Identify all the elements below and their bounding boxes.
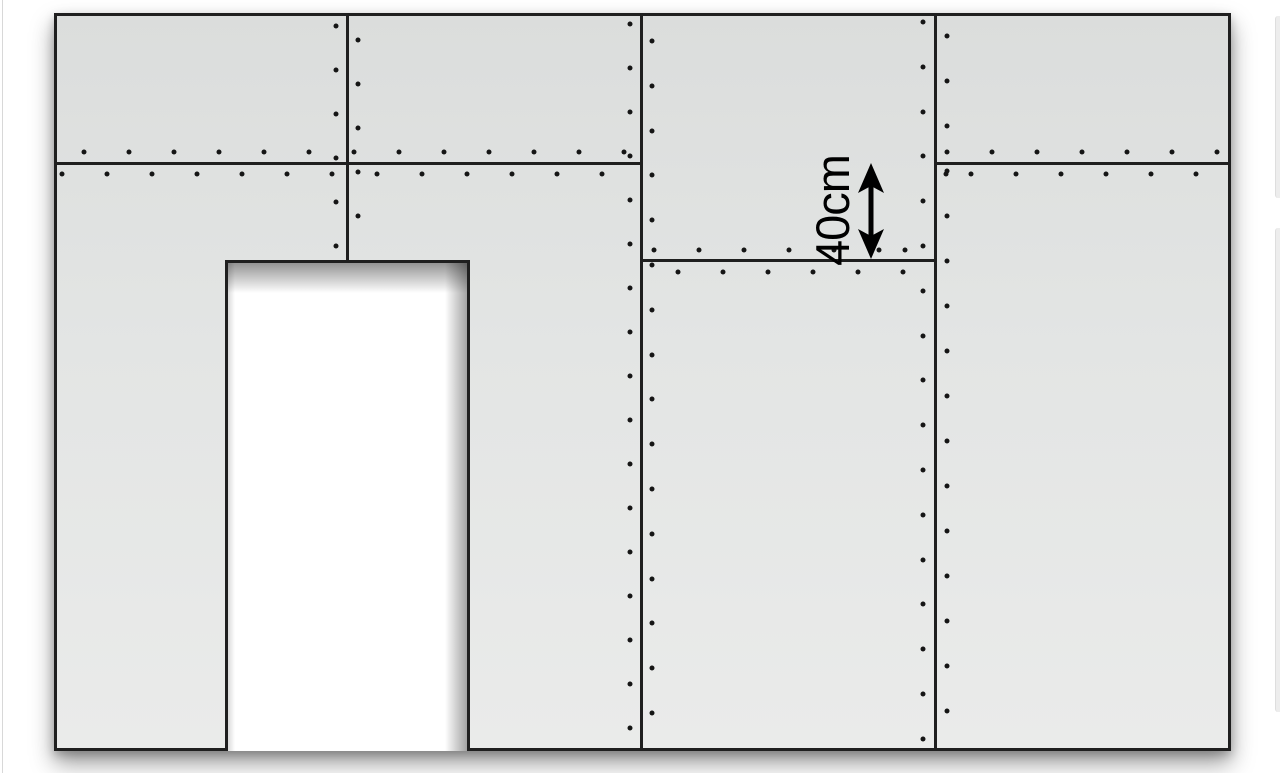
screw-dot <box>721 270 726 275</box>
screw-dot <box>628 550 633 555</box>
screw-dot <box>628 330 633 335</box>
screw-dot <box>903 248 908 253</box>
panel-seam-line <box>346 13 349 260</box>
page-left-edge-line <box>2 0 3 773</box>
screw-dot <box>921 736 926 741</box>
screw-dot <box>921 199 926 204</box>
screw-dot <box>945 664 950 669</box>
screw-dot <box>945 259 950 264</box>
diagram-canvas: 40cm <box>0 0 1280 773</box>
screw-dot <box>217 150 222 155</box>
screw-dot <box>628 242 633 247</box>
screw-dot <box>811 270 816 275</box>
screw-dot <box>742 248 747 253</box>
screw-dot <box>921 423 926 428</box>
screw-dot <box>334 156 339 161</box>
screw-dot <box>628 66 633 71</box>
screw-dot <box>1080 150 1085 155</box>
screw-dot <box>532 150 537 155</box>
screw-dot <box>1059 172 1064 177</box>
screw-dot <box>1014 172 1019 177</box>
screw-dot <box>442 150 447 155</box>
screw-dot <box>628 198 633 203</box>
screw-dot <box>334 68 339 73</box>
screw-dot <box>921 244 926 249</box>
door-inner-shadow-left <box>228 263 235 751</box>
screw-dot <box>945 439 950 444</box>
panel-seam-line <box>640 13 643 751</box>
door-inner-shadow-right <box>445 263 467 751</box>
screw-dot <box>650 397 655 402</box>
screw-dot <box>945 79 950 84</box>
screw-dot <box>356 126 361 131</box>
screw-dot <box>766 270 771 275</box>
screw-dot <box>397 150 402 155</box>
screw-dot <box>921 20 926 25</box>
screw-dot <box>650 218 655 223</box>
screw-dot <box>330 172 335 177</box>
screw-dot <box>628 726 633 731</box>
screw-dot <box>510 172 515 177</box>
screw-dot <box>628 418 633 423</box>
screw-dot <box>356 82 361 87</box>
screw-dot <box>628 374 633 379</box>
screw-dot <box>945 169 950 174</box>
screw-dot <box>334 112 339 117</box>
screw-dot <box>945 150 950 155</box>
screw-dot <box>465 172 470 177</box>
screw-dot <box>697 248 702 253</box>
screw-dot <box>1149 172 1154 177</box>
screw-dot <box>195 172 200 177</box>
screw-dot <box>127 150 132 155</box>
screw-dot <box>650 39 655 44</box>
screw-dot <box>650 352 655 357</box>
panel-seam-line <box>54 162 641 165</box>
screw-dot <box>622 150 627 155</box>
screw-dot <box>262 150 267 155</box>
screw-dot <box>856 270 861 275</box>
screw-dot <box>921 468 926 473</box>
screw-dot <box>334 24 339 29</box>
screw-dot <box>487 150 492 155</box>
screw-dot <box>945 124 950 129</box>
screw-dot <box>1104 172 1109 177</box>
screw-dot <box>921 378 926 383</box>
screw-dot <box>240 172 245 177</box>
screw-dot <box>105 172 110 177</box>
screw-dot <box>1170 150 1175 155</box>
screw-dot <box>628 594 633 599</box>
panel-seam-line <box>934 13 937 751</box>
screw-dot <box>921 64 926 69</box>
screw-dot <box>945 484 950 489</box>
screw-dot <box>375 172 380 177</box>
screw-dot <box>628 286 633 291</box>
screw-dot <box>82 150 87 155</box>
panel-seam-line <box>641 259 935 262</box>
screw-dot <box>352 150 357 155</box>
screw-dot <box>945 214 950 219</box>
screw-dot <box>285 172 290 177</box>
screw-dot <box>676 270 681 275</box>
screw-dot <box>945 34 950 39</box>
screw-dot <box>650 711 655 716</box>
screw-dot <box>921 154 926 159</box>
screw-dot <box>945 709 950 714</box>
screw-dot <box>334 200 339 205</box>
screw-dot <box>921 692 926 697</box>
screw-dot <box>945 304 950 309</box>
screw-dot <box>787 248 792 253</box>
screw-dot <box>628 682 633 687</box>
panel-seam-line <box>935 162 1231 165</box>
screw-dot <box>356 214 361 219</box>
screw-dot <box>945 619 950 624</box>
dimension-label: 40cm <box>808 156 858 266</box>
screw-dot <box>650 442 655 447</box>
screw-dot <box>650 263 655 268</box>
door-opening <box>225 260 470 751</box>
screw-dot <box>356 170 361 175</box>
screw-dot <box>650 666 655 671</box>
screw-dot <box>650 173 655 178</box>
door-inner-shadow-top <box>228 263 467 293</box>
screw-dot <box>600 172 605 177</box>
adjacent-image-sliver-top <box>1275 16 1280 198</box>
screw-dot <box>650 531 655 536</box>
screw-dot <box>650 128 655 133</box>
screw-dot <box>969 172 974 177</box>
screw-dot <box>945 529 950 534</box>
screw-dot <box>150 172 155 177</box>
screw-dot <box>921 333 926 338</box>
screw-dot <box>628 462 633 467</box>
screw-dot <box>1194 172 1199 177</box>
screw-dot <box>945 349 950 354</box>
screw-dot <box>650 487 655 492</box>
screw-dot <box>628 110 633 115</box>
screw-dot <box>555 172 560 177</box>
dimension-arrow-icon <box>856 162 886 260</box>
screw-dot <box>921 602 926 607</box>
screw-dot <box>921 512 926 517</box>
screw-dot <box>628 154 633 159</box>
screw-dot <box>1035 150 1040 155</box>
screw-dot <box>901 270 906 275</box>
screw-dot <box>921 647 926 652</box>
screw-dot <box>628 22 633 27</box>
screw-dot <box>650 307 655 312</box>
screw-dot <box>921 109 926 114</box>
screw-dot <box>334 244 339 249</box>
adjacent-image-sliver-bottom <box>1275 228 1280 712</box>
screw-dot <box>990 150 995 155</box>
screw-dot <box>420 172 425 177</box>
screw-dot <box>628 506 633 511</box>
screw-dot <box>356 38 361 43</box>
screw-dot <box>1125 150 1130 155</box>
screw-dot <box>60 172 65 177</box>
screw-dot <box>945 394 950 399</box>
screw-dot <box>921 557 926 562</box>
screw-dot <box>577 150 582 155</box>
screw-dot <box>1215 150 1220 155</box>
screw-dot <box>172 150 177 155</box>
screw-dot <box>650 83 655 88</box>
screw-dot <box>652 248 657 253</box>
screw-dot <box>628 638 633 643</box>
screw-dot <box>650 621 655 626</box>
screw-dot <box>945 574 950 579</box>
screw-dot <box>307 150 312 155</box>
screw-dot <box>650 576 655 581</box>
screw-dot <box>921 288 926 293</box>
